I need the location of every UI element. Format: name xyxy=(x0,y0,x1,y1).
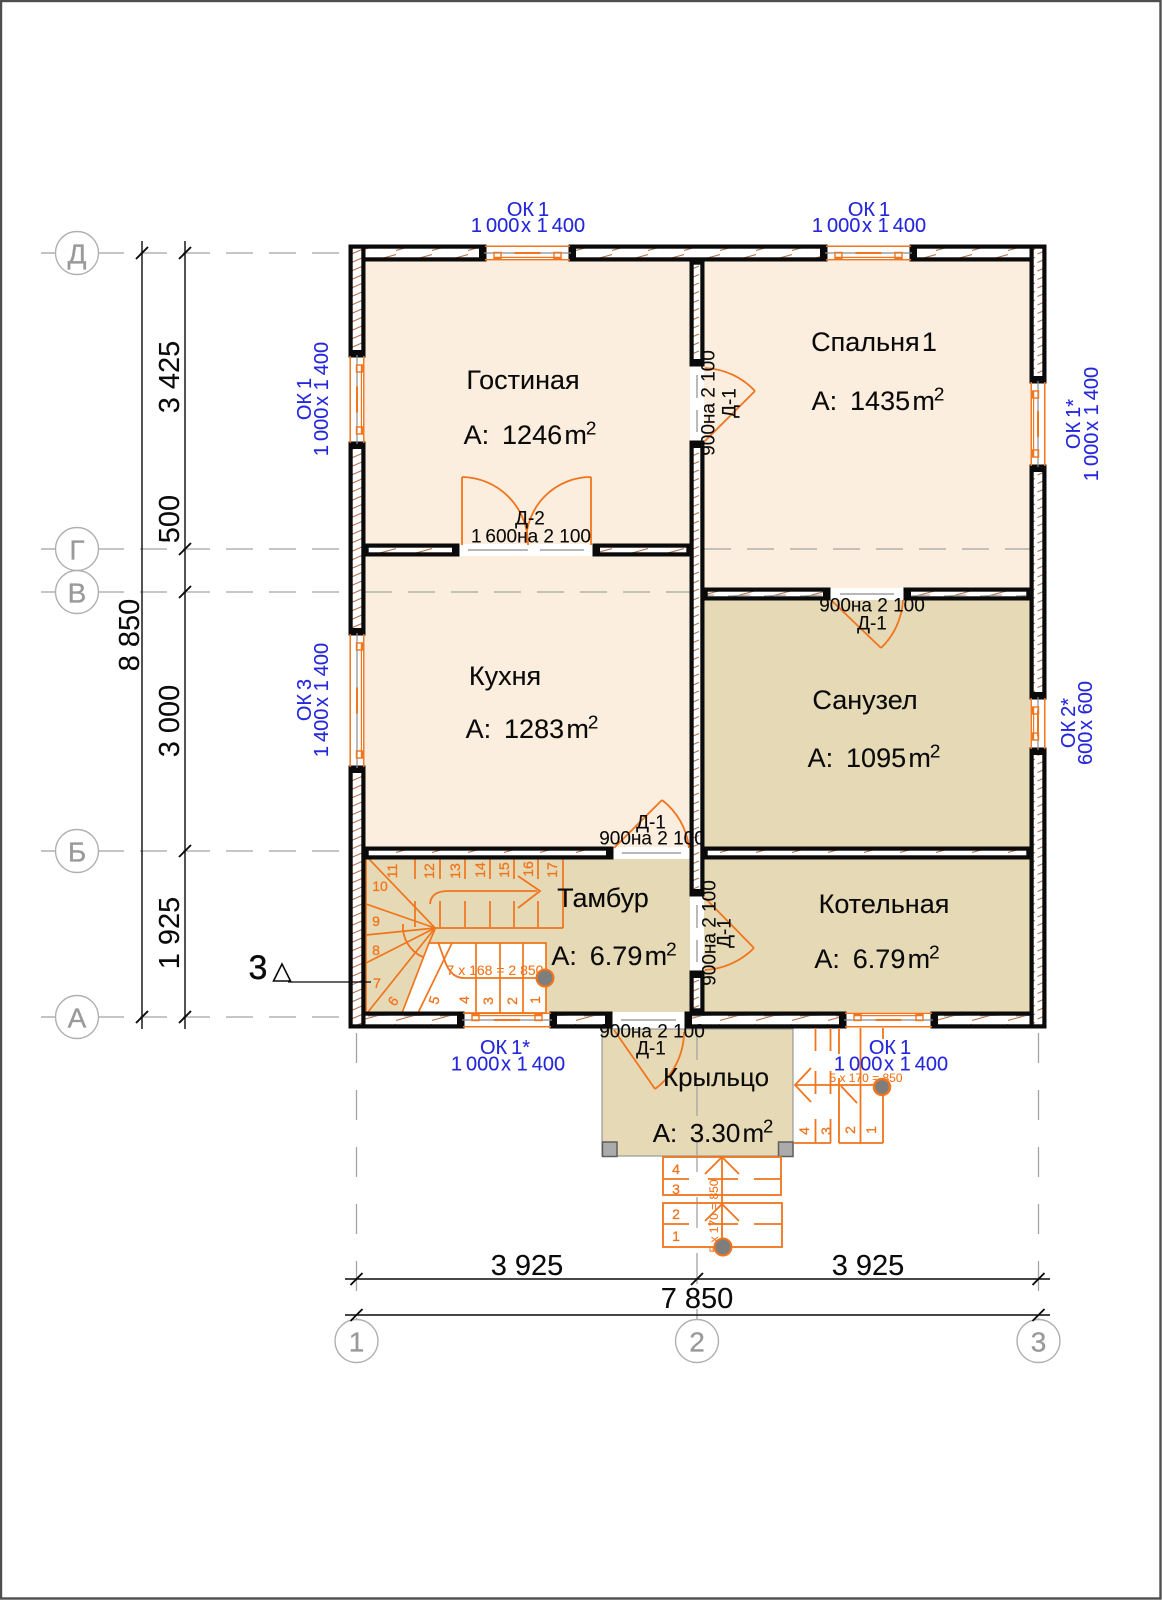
svg-text:1: 1 xyxy=(349,1327,365,1358)
svg-text:3: 3 xyxy=(818,1127,834,1135)
svg-text:1: 1 xyxy=(863,1126,879,1134)
svg-text:1 000 х 1 400: 1 000 х 1 400 xyxy=(812,215,926,237)
svg-text:12: 12 xyxy=(421,863,437,879)
svg-text:Д-1: Д-1 xyxy=(720,388,741,418)
svg-text:3 000: 3 000 xyxy=(154,685,186,758)
svg-text:А: 3.30 m2: А: 3.30 m2 xyxy=(653,1117,774,1149)
svg-text:А: 6.79 m2: А: 6.79 m2 xyxy=(814,942,939,974)
svg-text:8: 8 xyxy=(372,942,380,958)
svg-text:600 х 600: 600 х 600 xyxy=(1075,681,1097,765)
svg-text:Д-1: Д-1 xyxy=(715,918,736,948)
svg-text:Кухня: Кухня xyxy=(469,661,541,691)
svg-text:3 925: 3 925 xyxy=(832,1250,905,1282)
svg-text:7 850: 7 850 xyxy=(661,1283,734,1315)
svg-text:1: 1 xyxy=(527,996,543,1004)
svg-text:900на 2 100: 900на 2 100 xyxy=(699,350,720,456)
svg-text:В: В xyxy=(68,578,87,609)
svg-text:А: 1246 m2: А: 1246 m2 xyxy=(464,418,597,450)
svg-text:1 600на 2 100: 1 600на 2 100 xyxy=(471,527,591,548)
svg-text:7: 7 xyxy=(373,975,381,991)
svg-text:3: 3 xyxy=(480,997,496,1005)
svg-text:900на 2 100: 900на 2 100 xyxy=(599,829,705,850)
svg-text:А: 1095 m2: А: 1095 m2 xyxy=(808,741,941,773)
svg-text:3 925: 3 925 xyxy=(491,1250,564,1282)
svg-text:16: 16 xyxy=(520,861,536,877)
svg-text:1 925: 1 925 xyxy=(154,897,186,970)
svg-text:3: 3 xyxy=(1031,1327,1047,1358)
svg-text:А: 6.79 m2: А: 6.79 m2 xyxy=(551,939,676,971)
svg-text:Крыльцо: Крыльцо xyxy=(663,1062,769,1092)
svg-text:1 000 х 1 400: 1 000 х 1 400 xyxy=(311,342,333,456)
svg-text:4: 4 xyxy=(672,1161,680,1177)
svg-text:13: 13 xyxy=(447,863,463,879)
svg-text:А: 1435 m2: А: 1435 m2 xyxy=(812,384,945,416)
svg-text:500: 500 xyxy=(154,495,186,543)
svg-text:15: 15 xyxy=(496,862,512,878)
svg-text:Санузел: Санузел xyxy=(812,685,917,715)
svg-text:Гостиная: Гостиная xyxy=(466,365,579,395)
svg-text:Спальня 1: Спальня 1 xyxy=(811,327,937,357)
svg-text:3 425: 3 425 xyxy=(154,341,186,414)
svg-text:2: 2 xyxy=(842,1126,858,1134)
svg-text:3: 3 xyxy=(249,949,268,987)
svg-text:2: 2 xyxy=(689,1327,705,1358)
svg-text:Д: Д xyxy=(68,239,87,270)
svg-text:17: 17 xyxy=(544,862,560,878)
svg-text:1 000 х 1 400: 1 000 х 1 400 xyxy=(471,215,585,237)
svg-text:Тамбур: Тамбур xyxy=(557,883,649,913)
svg-text:4: 4 xyxy=(796,1127,812,1135)
svg-text:9: 9 xyxy=(372,913,380,929)
svg-text:1: 1 xyxy=(672,1228,680,1244)
svg-text:1 000 х 1 400: 1 000 х 1 400 xyxy=(451,1054,565,1076)
svg-text:7 х 168 = 2 850: 7 х 168 = 2 850 xyxy=(447,962,544,978)
svg-text:Г: Г xyxy=(69,535,84,566)
svg-text:11: 11 xyxy=(384,864,400,879)
svg-text:Б: Б xyxy=(68,837,86,868)
svg-text:Д-1: Д-1 xyxy=(857,614,887,635)
svg-text:Д-1: Д-1 xyxy=(636,1039,666,1060)
svg-text:1 400 х 1 400: 1 400 х 1 400 xyxy=(311,643,333,757)
svg-text:Котельная: Котельная xyxy=(819,889,950,919)
svg-text:2: 2 xyxy=(672,1206,680,1222)
svg-text:2: 2 xyxy=(504,997,520,1005)
svg-text:3: 3 xyxy=(672,1181,680,1197)
svg-text:1 000 х 1 400: 1 000 х 1 400 xyxy=(834,1054,948,1076)
svg-text:8 850: 8 850 xyxy=(114,599,146,672)
svg-text:14: 14 xyxy=(472,862,488,878)
svg-text:10: 10 xyxy=(372,878,388,894)
svg-text:А: 1283 m2: А: 1283 m2 xyxy=(466,712,599,744)
svg-text:4: 4 xyxy=(456,996,472,1004)
svg-text:А: А xyxy=(68,1003,87,1034)
svg-text:1 000 х 1 400: 1 000 х 1 400 xyxy=(1081,367,1103,481)
